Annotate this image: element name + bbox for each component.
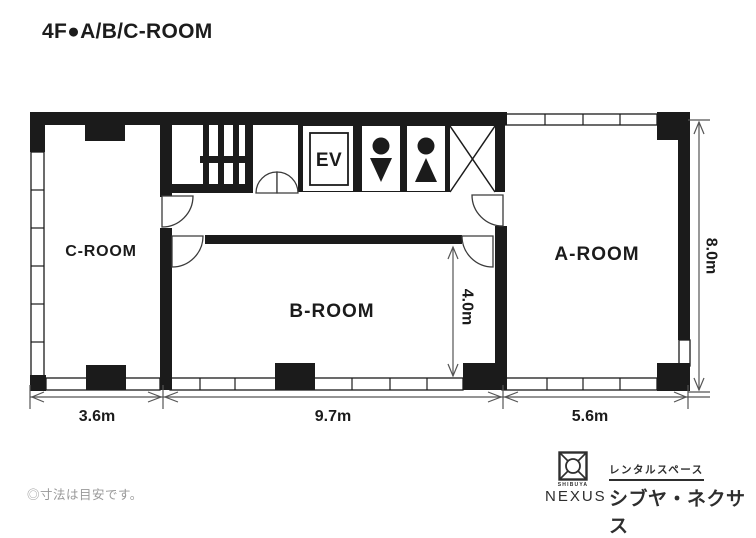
window-left xyxy=(31,152,44,378)
room-label-b: B-ROOM xyxy=(289,301,374,322)
dimension-a-width: 5.6m xyxy=(572,408,608,425)
door-arc-c-room xyxy=(162,196,193,227)
dimension-b-width: 9.7m xyxy=(315,408,351,425)
window-bottom-b xyxy=(170,378,463,390)
dimension-bottom: 3.6m 9.7m 5.6m xyxy=(30,385,710,425)
window-top-a xyxy=(505,114,657,125)
nexus-logo-icon xyxy=(558,451,588,481)
pillar-bottom-c xyxy=(86,365,126,390)
dimension-b-depth-label: 4.0m xyxy=(458,289,475,325)
door-arc-entrance-right xyxy=(277,172,298,193)
toilet-male-box xyxy=(362,126,400,191)
wall-top xyxy=(30,112,507,125)
room-label-a: A-ROOM xyxy=(554,244,639,265)
wall-right xyxy=(678,125,690,340)
window-bottom-a xyxy=(502,378,657,390)
wall-b-top xyxy=(205,235,462,244)
logo-service-text: レンタルスペース xyxy=(609,462,704,481)
pillar-bottom-right xyxy=(657,363,690,391)
logo-nexus-text: NEXUS xyxy=(545,488,601,505)
dimension-c-width: 3.6m xyxy=(79,408,115,425)
door-arc-entrance-left xyxy=(256,172,277,193)
wall-a-lower xyxy=(495,226,507,390)
stairs-icon xyxy=(160,125,253,193)
note-text: ◎寸法は目安です。 xyxy=(27,484,143,503)
elevator-box: EV xyxy=(303,126,353,191)
door-arc-b-room-right xyxy=(462,236,493,267)
brand-logo: SHIBUYA NEXUS レンタルスペース シブヤ・ネクサス xyxy=(545,451,756,538)
door-arc-b-room-left xyxy=(172,236,203,267)
dimension-b-depth: 4.0m xyxy=(448,247,475,376)
pillar-top-c xyxy=(85,125,125,141)
room-label-c: C-ROOM xyxy=(65,243,136,260)
door-arc-a-room xyxy=(472,195,503,226)
dimension-total-depth: 8.0m xyxy=(702,238,719,274)
nexus-logo-mark: SHIBUYA NEXUS xyxy=(545,451,601,505)
wall-left-top xyxy=(30,112,45,152)
logo-brand-text: シブヤ・ネクサス xyxy=(609,484,756,538)
window-right xyxy=(679,340,690,366)
dimension-right: 8.0m xyxy=(688,120,719,392)
toilet-female-box xyxy=(407,126,445,191)
shaft-box xyxy=(450,126,495,192)
pillar-bottom-left xyxy=(30,375,46,391)
elevator-label: EV xyxy=(316,150,342,171)
wall-c-lower xyxy=(160,228,172,390)
pillar-bottom-b1 xyxy=(275,363,315,390)
